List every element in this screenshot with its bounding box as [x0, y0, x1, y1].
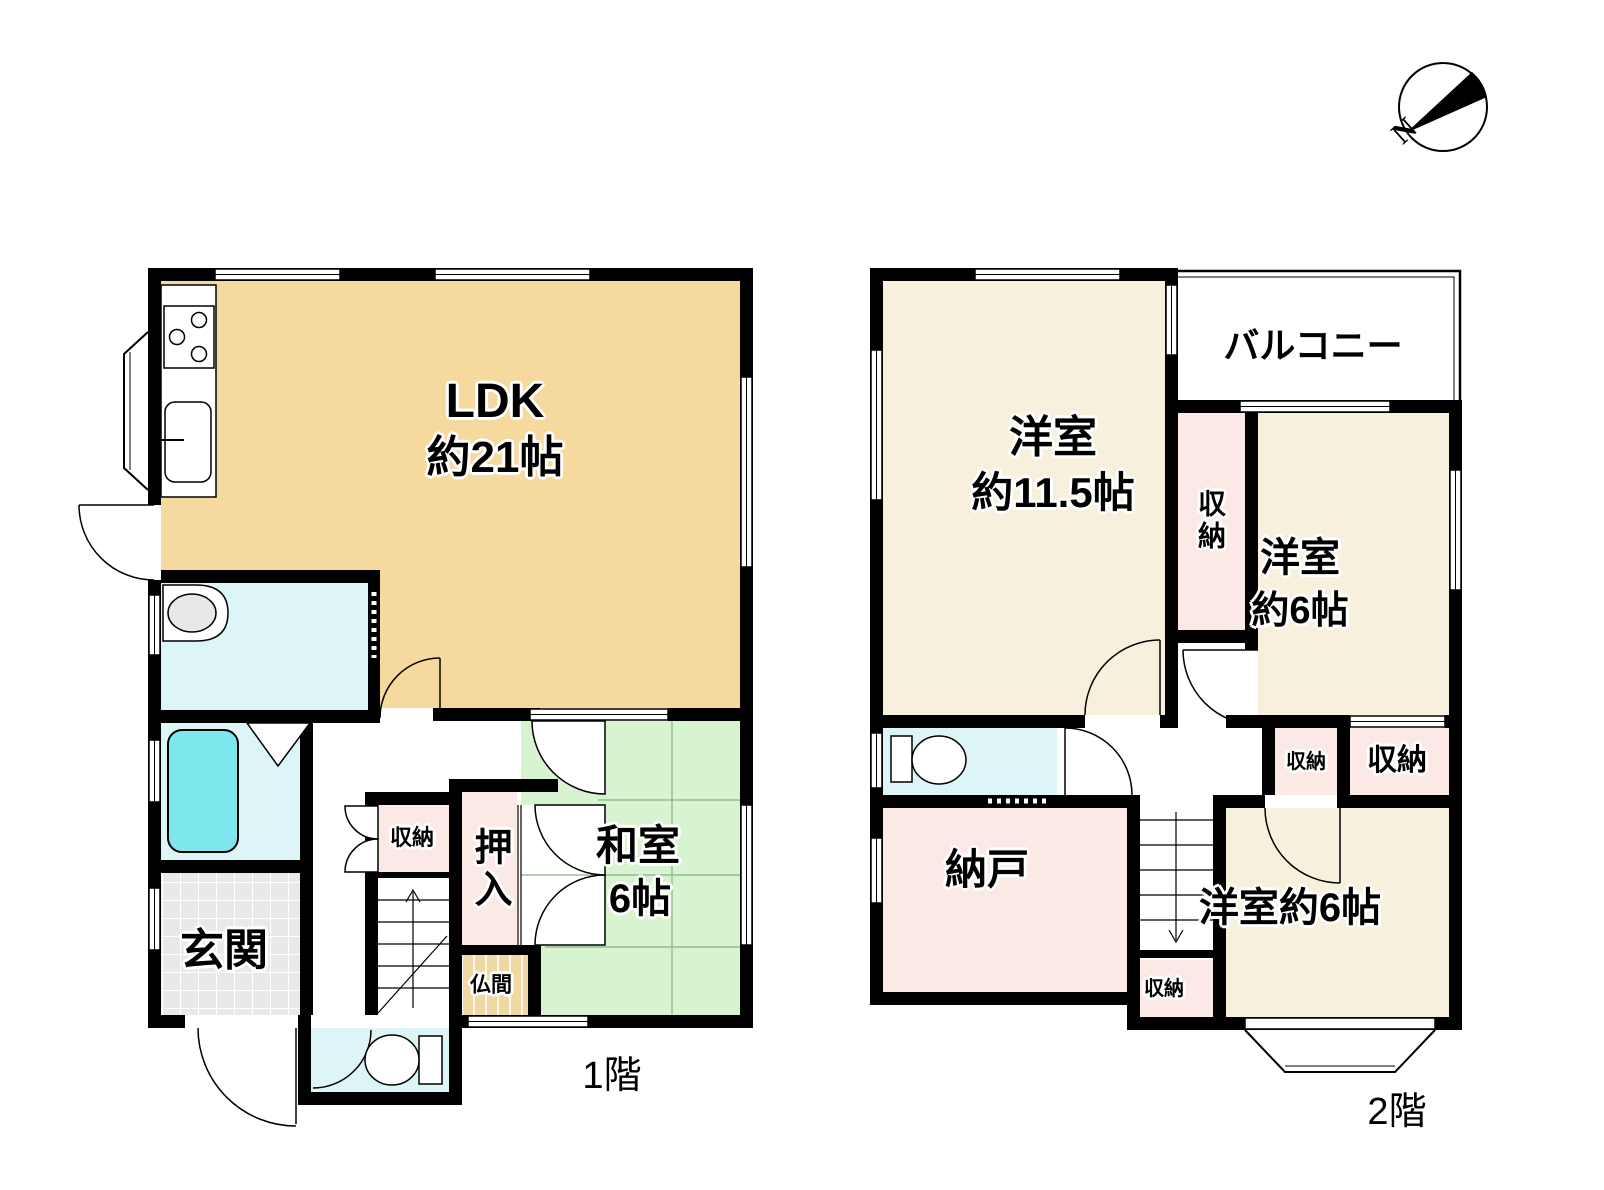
floorplan-drawing: N	[0, 0, 1604, 1190]
label-western6-bottom: 洋室約6帖	[1199, 888, 1381, 928]
label-floor2: 2階	[1367, 1093, 1426, 1131]
label-western115-line1: 洋室	[1009, 416, 1097, 460]
label-closet-1f: 収納	[390, 827, 434, 849]
label-nando: 納戸	[945, 849, 1029, 891]
room-nando	[883, 808, 1127, 992]
toilet-icon-1f	[365, 1035, 442, 1085]
label-western6-top-line1: 洋室	[1260, 538, 1340, 578]
stove-icon	[164, 306, 214, 368]
floor1-plan	[79, 268, 753, 1126]
fusuma-line	[518, 805, 521, 945]
label-western115-line2: 約11.5帖	[971, 472, 1134, 514]
label-closet-tall: 収納	[1196, 489, 1224, 553]
label-genkan: 玄関	[180, 929, 268, 973]
kitchen-counter	[161, 285, 216, 497]
stairs-up	[378, 890, 449, 1013]
label-washitsu-line1: 和室	[596, 825, 680, 867]
floor2-plan	[870, 268, 1462, 1072]
label-washitsu-line2: 6帖	[609, 879, 671, 919]
bay-window-kitchen	[124, 332, 148, 490]
label-ldk-line1: LDK	[446, 378, 545, 426]
toilet-icon-2f	[891, 736, 966, 784]
label-closet-right: 収納	[1367, 746, 1427, 776]
floorplan-page: N LDK 約21帖 和室 6帖 玄関 収納 押入 仏間 1階 洋室 約11.5…	[0, 0, 1604, 1190]
compass-icon: N	[1385, 63, 1487, 151]
label-western6-top-line2: 約6帖	[1251, 592, 1348, 630]
label-oshiire: 押入	[470, 827, 508, 911]
label-closet-under-stairs: 収納	[1144, 979, 1184, 999]
bay-window-bottom	[1245, 1030, 1435, 1072]
washbasin-icon	[163, 585, 228, 641]
label-balcony: バルコニー	[1223, 328, 1402, 364]
label-closet-mid: 収納	[1286, 752, 1326, 772]
label-floor1: 1階	[582, 1057, 641, 1095]
label-ldk-line2: 約21帖	[427, 436, 564, 480]
label-butsuma: 仏間	[470, 975, 512, 996]
bathtub-icon	[168, 730, 238, 852]
sink-icon	[161, 402, 211, 482]
